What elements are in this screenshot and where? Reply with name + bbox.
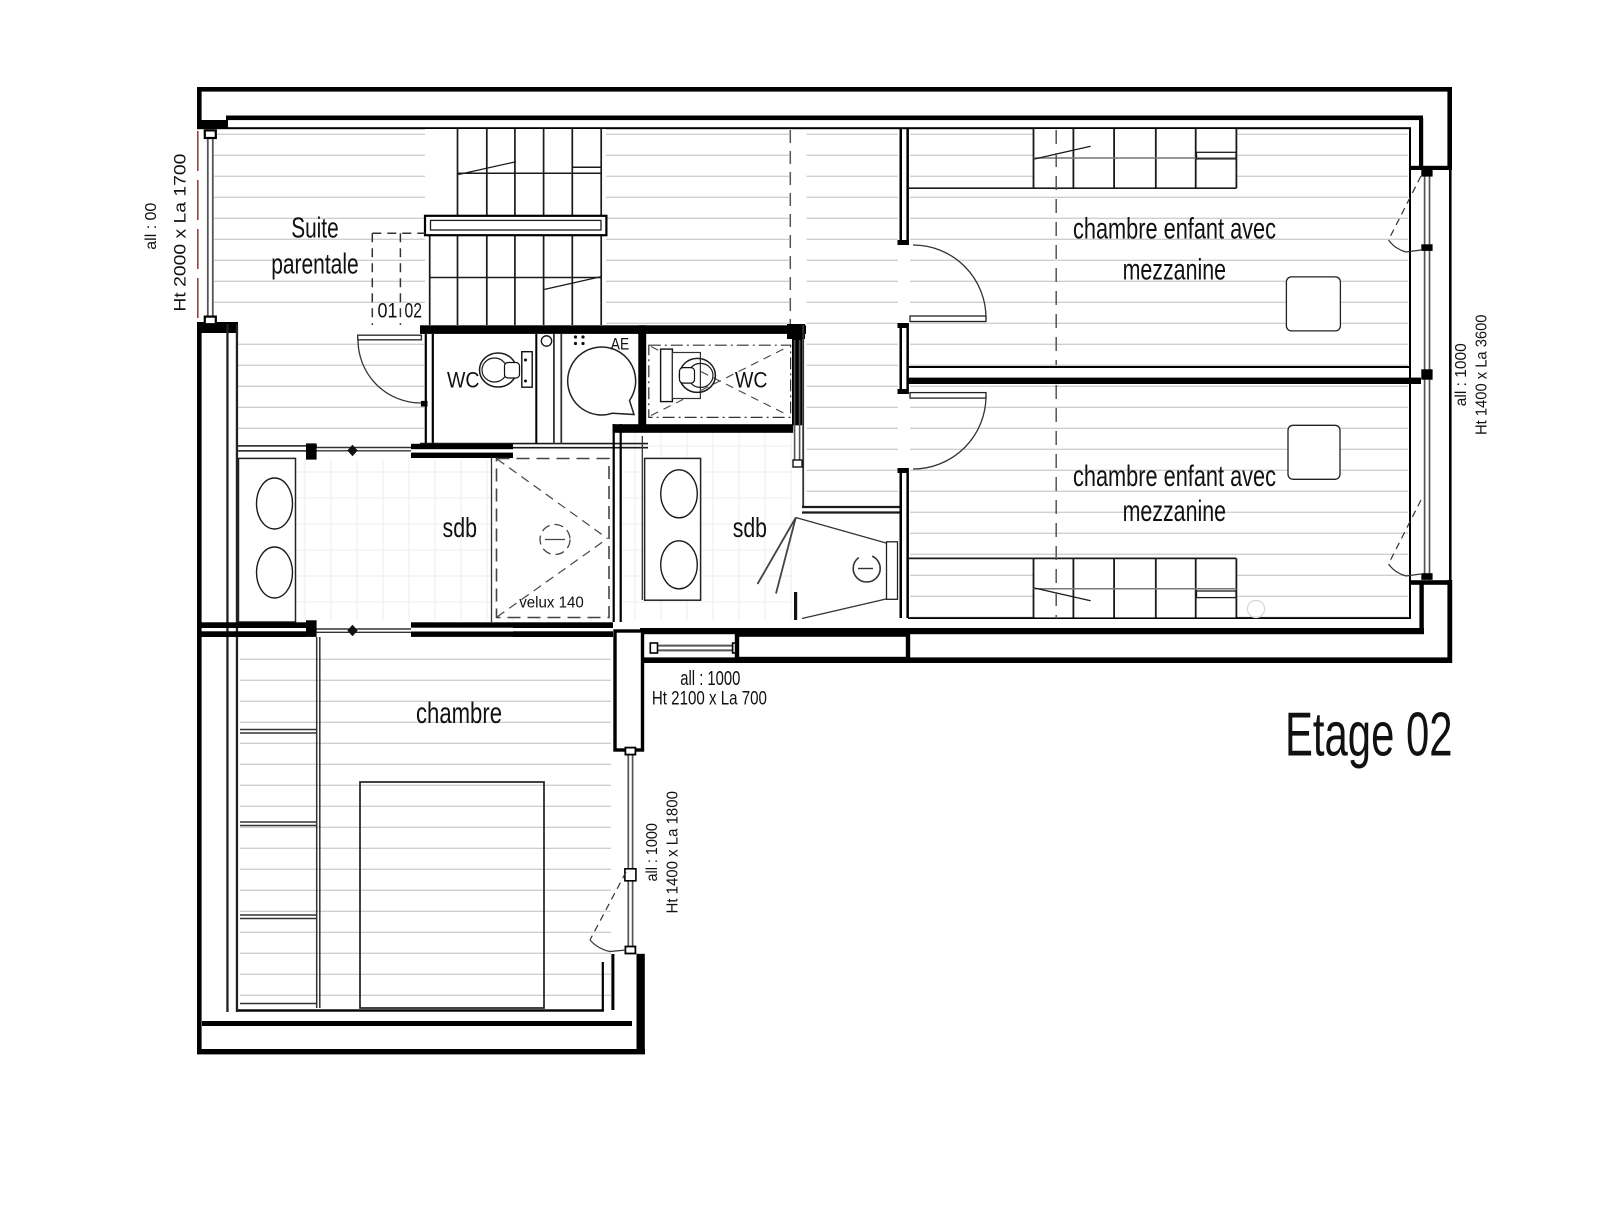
svg-text:WC: WC [735, 368, 768, 393]
svg-text:Ht 1400 x La 3600: Ht 1400 x La 3600 [1474, 314, 1491, 435]
svg-text:all : 1000: all : 1000 [1453, 343, 1470, 406]
svg-text:Ht 1400 x La 1800: Ht 1400 x La 1800 [664, 791, 681, 913]
svg-text:parentale: parentale [271, 249, 359, 281]
svg-text:02: 02 [405, 300, 423, 323]
svg-text:Etage 02: Etage 02 [1285, 701, 1453, 770]
svg-text:mezzanine: mezzanine [1123, 254, 1226, 287]
svg-text:sdb: sdb [443, 512, 478, 543]
svg-text:Ht 2000 x La 1700: Ht 2000 x La 1700 [171, 154, 189, 312]
svg-text:all : 1000: all : 1000 [680, 668, 740, 690]
svg-text:chambre enfant avec: chambre enfant avec [1073, 213, 1276, 246]
svg-text:chambre enfant avec: chambre enfant avec [1073, 460, 1276, 493]
svg-text:Suite: Suite [291, 213, 339, 245]
svg-text:velux 140: velux 140 [519, 595, 584, 612]
svg-text:chambre: chambre [416, 697, 502, 730]
svg-text:AE: AE [611, 336, 629, 354]
svg-text:01: 01 [378, 300, 398, 323]
svg-text:mezzanine: mezzanine [1123, 495, 1226, 528]
svg-text:all : 1000: all : 1000 [644, 823, 661, 881]
svg-text:Ht 2100 x La 700: Ht 2100 x La 700 [652, 689, 767, 710]
svg-text:WC: WC [447, 368, 480, 393]
svg-text:sdb: sdb [733, 512, 767, 543]
svg-text:all : 00: all : 00 [143, 203, 160, 250]
